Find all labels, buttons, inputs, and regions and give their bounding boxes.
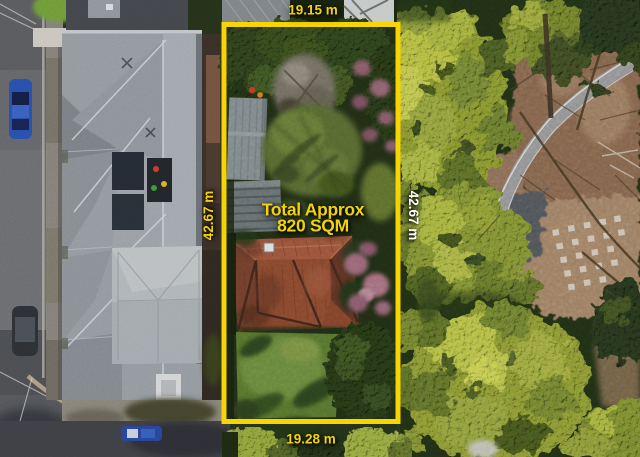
svg-text:42.67 m: 42.67 m xyxy=(201,191,216,241)
svg-text:820 SQM: 820 SQM xyxy=(277,216,349,236)
svg-text:19.15 m: 19.15 m xyxy=(288,3,338,18)
svg-text:42.67 m: 42.67 m xyxy=(406,191,421,241)
svg-text:19.28 m: 19.28 m xyxy=(286,432,336,447)
